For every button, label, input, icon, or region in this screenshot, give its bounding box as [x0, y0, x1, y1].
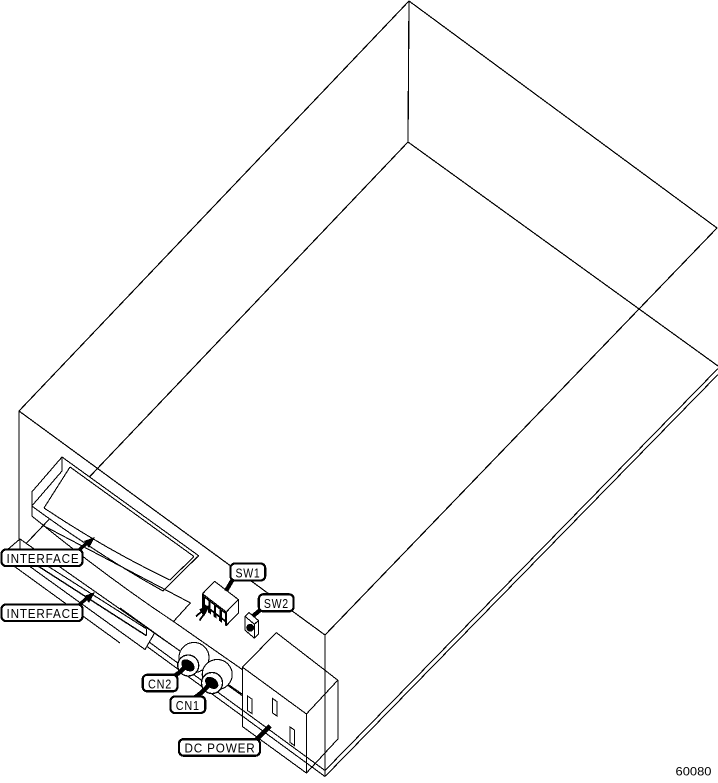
svg-text:CN1: CN1: [176, 698, 200, 713]
svg-text:SW1: SW1: [236, 565, 261, 580]
svg-text:SW2: SW2: [264, 596, 289, 611]
svg-text:60080: 60080: [676, 765, 712, 779]
svg-text:DC POWER: DC POWER: [185, 741, 256, 756]
svg-text:INTERFACE: INTERFACE: [7, 606, 80, 621]
svg-text:INTERFACE: INTERFACE: [7, 551, 80, 566]
svg-text:CN2: CN2: [148, 676, 172, 691]
